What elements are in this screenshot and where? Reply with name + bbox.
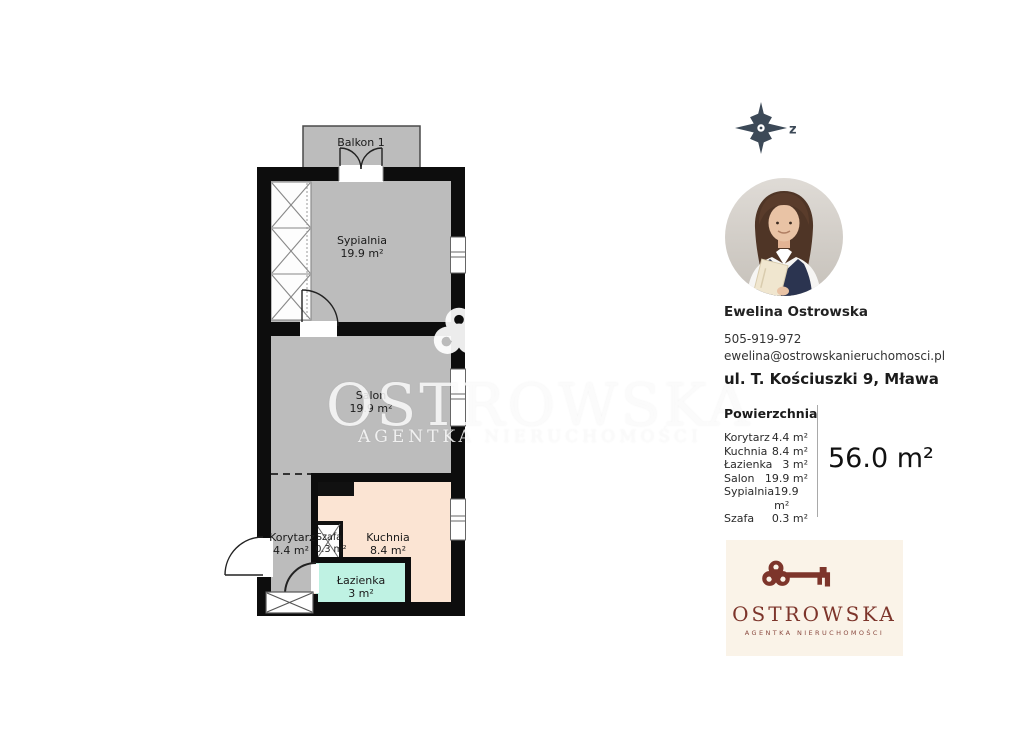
areas-table: Korytarz 4.4 m² Kuchnia 8.4 m² Łazienka … — [724, 431, 808, 526]
agent-photo — [725, 178, 843, 296]
table-row: Szafa 0.3 m² — [724, 512, 808, 526]
room-area: 19.9 m² — [765, 472, 808, 486]
total-area: 56.0 m² — [828, 443, 934, 474]
room-name: Sypialnia — [724, 485, 774, 512]
room-name: Korytarz — [724, 431, 770, 445]
room-label-salon: Salon — [356, 389, 387, 402]
room-area: 19.9 m² — [774, 485, 808, 512]
room-area-szafa: 0.3 m² — [315, 544, 346, 555]
agency-logo-card: OSTROWSKA AGENTKA NIERUCHOMOŚCI — [726, 540, 903, 656]
room-area-lazienka: 3 m² — [348, 587, 374, 600]
room-label-szafa: Szafa — [316, 532, 342, 543]
agency-brand-name: OSTROWSKA — [732, 602, 897, 626]
agent-email: ewelina@ostrowskanieruchomosci.pl — [724, 349, 945, 363]
table-row: Łazienka 3 m² — [724, 458, 808, 472]
room-label-kuchnia: Kuchnia — [366, 531, 409, 544]
agent-name: Ewelina Ostrowska — [724, 304, 868, 320]
room-area-sypialnia: 19.9 m² — [340, 247, 383, 260]
floor-plan-flyer: { "compass": { "direction_label": "z" },… — [0, 0, 1024, 750]
balcony-label: Balkon 1 — [337, 136, 385, 149]
key-icon — [760, 552, 870, 598]
room-area-korytarz: 4.4 m² — [273, 544, 309, 557]
table-row: Salon 19.9 m² — [724, 472, 808, 486]
agent-photo-illustration — [725, 178, 843, 296]
room-area: 4.4 m² — [772, 431, 808, 445]
table-row: Sypialnia 19.9 m² — [724, 485, 808, 512]
room-area: 0.3 m² — [772, 512, 808, 526]
room-name: Kuchnia — [724, 445, 767, 459]
room-label-sypialnia: Sypialnia — [337, 234, 387, 247]
agent-phone: 505-919-972 — [724, 332, 801, 346]
room-label-korytarz: Korytarz — [269, 531, 315, 544]
hall-cabinet — [266, 592, 313, 613]
room-name: Szafa — [724, 512, 754, 526]
agent-address: ul. T. Kościuszki 9, Mława — [724, 370, 939, 388]
room-area: 3 m² — [782, 458, 808, 472]
compass-direction-label: z — [789, 123, 797, 138]
room-area-kuchnia: 8.4 m² — [370, 544, 406, 557]
wardrobe — [271, 182, 311, 320]
table-row: Kuchnia 8.4 m² — [724, 445, 808, 459]
agency-tagline: AGENTKA NIERUCHOMOŚCI — [745, 629, 884, 637]
room-label-lazienka: Łazienka — [336, 574, 385, 587]
room-area-salon: 19.9 m² — [349, 402, 392, 415]
key-watermark-icon — [434, 308, 558, 355]
vertical-divider — [817, 405, 818, 517]
room-name: Łazienka — [724, 458, 772, 472]
compass-rose-icon: z — [731, 99, 809, 157]
room-area: 8.4 m² — [772, 445, 808, 459]
areas-title: Powierzchnia — [724, 406, 817, 421]
table-row: Korytarz 4.4 m² — [724, 431, 808, 445]
kitchen-counter — [314, 480, 354, 496]
room-name: Salon — [724, 472, 754, 486]
